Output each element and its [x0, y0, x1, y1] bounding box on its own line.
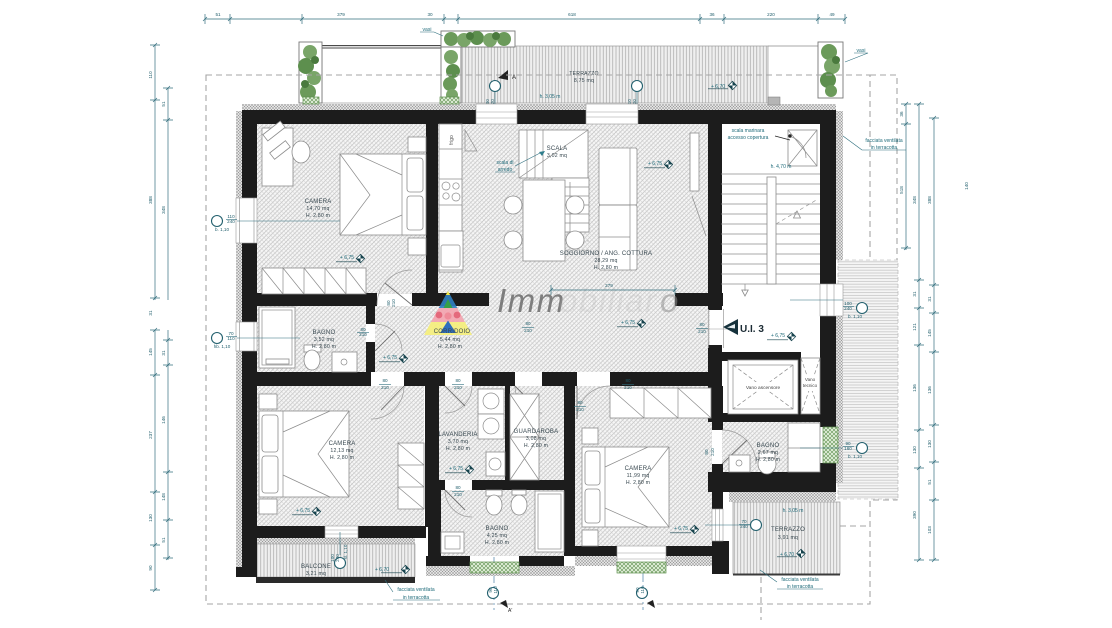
svg-text:210: 210: [710, 448, 715, 456]
svg-text:Imm: Imm: [497, 282, 566, 319]
svg-text:b. 1,10: b. 1,10: [215, 227, 229, 232]
svg-text:U.I. 3: U.I. 3: [740, 324, 764, 335]
svg-text:LAVANDERIA: LAVANDERIA: [438, 432, 477, 438]
svg-text:3,91 mq: 3,91 mq: [778, 535, 798, 541]
svg-text:BAGNO: BAGNO: [757, 443, 780, 449]
svg-text:+ 6,75: + 6,75: [674, 526, 688, 532]
svg-text:279: 279: [605, 283, 613, 288]
svg-text:sl. 1,10: sl. 1,10: [343, 544, 348, 559]
svg-text:hb. 1,10: hb. 1,10: [214, 344, 231, 349]
svg-text:accesso copertura: accesso copertura: [728, 135, 769, 141]
svg-text:140: 140: [964, 182, 969, 190]
svg-text:237: 237: [148, 431, 153, 439]
svg-text:80: 80: [577, 400, 583, 405]
svg-text:o: o: [660, 282, 680, 319]
svg-text:12,13 mq: 12,13 mq: [330, 448, 353, 454]
svg-text:51: 51: [161, 537, 166, 543]
svg-text:130: 130: [912, 446, 917, 454]
svg-text:facciata ventilata: facciata ventilata: [781, 577, 818, 583]
svg-text:h. 3,05 m: h. 3,05 m: [783, 508, 804, 514]
svg-text:facciata ventilata: facciata ventilata: [865, 138, 902, 144]
svg-text:scala di: scala di: [497, 160, 514, 166]
svg-text:130: 130: [148, 514, 153, 522]
svg-text:BAGNO: BAGNO: [313, 330, 336, 336]
svg-text:+ 6,75: + 6,75: [648, 161, 662, 167]
svg-text:80: 80: [455, 485, 461, 490]
svg-text:H. 2,80 m: H. 2,80 m: [756, 457, 780, 463]
svg-text:4,25 mq: 4,25 mq: [487, 533, 507, 539]
svg-text:379: 379: [337, 12, 345, 17]
svg-text:388: 388: [148, 196, 153, 204]
svg-text:518: 518: [899, 186, 904, 194]
svg-text:31: 31: [148, 310, 153, 316]
svg-text:SCALA: SCALA: [547, 146, 568, 152]
svg-text:103: 103: [927, 526, 932, 534]
svg-text:Vano: Vano: [805, 377, 816, 382]
svg-text:+ 6,75: + 6,75: [621, 320, 635, 326]
svg-text:210: 210: [624, 385, 632, 390]
svg-text:CAMERA: CAMERA: [329, 441, 356, 447]
svg-text:3,02 mq: 3,02 mq: [547, 153, 567, 159]
svg-text:14,70 mq: 14,70 mq: [306, 206, 329, 212]
svg-text:348: 348: [161, 206, 166, 214]
svg-text:+ 6,75: + 6,75: [296, 508, 310, 514]
svg-text:TERRAZZO: TERRAZZO: [771, 527, 805, 533]
svg-text:388: 388: [927, 196, 932, 204]
svg-text:148: 148: [161, 493, 166, 501]
svg-text:80: 80: [704, 449, 709, 455]
svg-text:H. 2,80 m: H. 2,80 m: [485, 540, 509, 546]
svg-text:BAGNO: BAGNO: [486, 526, 509, 532]
svg-text:51: 51: [215, 12, 221, 17]
svg-text:A: A: [512, 75, 516, 81]
svg-text:+ 6,75: + 6,75: [383, 355, 397, 361]
svg-text:H. 2,80 m: H. 2,80 m: [524, 443, 548, 449]
svg-text:136: 136: [927, 386, 932, 394]
svg-text:146: 146: [161, 416, 166, 424]
svg-text:tecnico: tecnico: [803, 383, 818, 388]
svg-text:90: 90: [148, 565, 153, 571]
svg-text:facciata ventilata: facciata ventilata: [397, 587, 434, 593]
svg-text:348: 348: [912, 196, 917, 204]
svg-text:frigo: frigo: [449, 135, 455, 145]
svg-text:31: 31: [161, 350, 166, 356]
svg-text:BALCONE: BALCONE: [301, 564, 331, 570]
svg-text:145: 145: [927, 329, 932, 337]
svg-text:H. 2,80 m: H. 2,80 m: [306, 213, 330, 219]
svg-text:H. 2,80 m: H. 2,80 m: [626, 480, 650, 486]
svg-text:scala marinara: scala marinara: [732, 128, 765, 134]
svg-text:51: 51: [161, 101, 166, 107]
svg-text:136: 136: [912, 384, 917, 392]
svg-text:CAMERA: CAMERA: [625, 466, 652, 472]
svg-text:30: 30: [427, 12, 433, 17]
svg-text:220: 220: [767, 12, 775, 17]
svg-text:TERRAZZO: TERRAZZO: [569, 71, 599, 77]
svg-text:3,52 mq: 3,52 mq: [314, 337, 334, 343]
svg-text:110: 110: [148, 71, 153, 79]
svg-text:80: 80: [525, 321, 531, 326]
svg-text:5,44 mq: 5,44 mq: [440, 337, 460, 343]
svg-text:+ 6,70: + 6,70: [375, 567, 389, 573]
svg-text:H. 2,80 m: H. 2,80 m: [594, 265, 618, 271]
svg-text:80: 80: [455, 378, 461, 383]
svg-text:28,29 mq: 28,29 mq: [594, 258, 617, 264]
svg-text:618: 618: [568, 12, 576, 17]
svg-text:3,08 mq: 3,08 mq: [526, 436, 546, 442]
svg-text:3,70 mq: 3,70 mq: [448, 439, 468, 445]
svg-text:H. 2,80 m: H. 2,80 m: [446, 446, 470, 452]
svg-text:210: 210: [698, 329, 706, 334]
svg-text:H. 2,80 m: H. 2,80 m: [438, 344, 462, 350]
svg-text:240: 240: [335, 554, 340, 562]
svg-text:h. 3,05 m: h. 3,05 m: [540, 94, 561, 100]
svg-text:210: 210: [576, 407, 584, 412]
svg-text:110: 110: [640, 586, 645, 594]
svg-text:110: 110: [493, 586, 498, 594]
svg-text:51: 51: [927, 479, 932, 485]
svg-text:h. 4,70 m: h. 4,70 m: [771, 164, 792, 170]
svg-text:CAMERA: CAMERA: [305, 199, 332, 205]
svg-text:H. 2,80 m: H. 2,80 m: [330, 455, 354, 461]
svg-text:+ 6,75: + 6,75: [449, 466, 463, 472]
svg-text:121: 121: [912, 323, 917, 331]
svg-text:H. 2,80 m: H. 2,80 m: [312, 344, 336, 350]
svg-text:31: 31: [927, 296, 932, 302]
svg-text:390: 390: [912, 511, 917, 519]
svg-text:3,21 mq: 3,21 mq: [306, 571, 326, 577]
svg-text:+ 6,75: + 6,75: [771, 333, 785, 339]
svg-text:210: 210: [391, 299, 396, 307]
svg-text:11,99 mq: 11,99 mq: [627, 473, 650, 479]
svg-text:80: 80: [699, 322, 705, 327]
svg-text:31: 31: [912, 291, 917, 297]
svg-text:210: 210: [454, 492, 462, 497]
svg-text:CORRIDOIO: CORRIDOIO: [434, 329, 471, 335]
svg-text:36: 36: [899, 111, 904, 117]
svg-text:36: 36: [709, 12, 715, 17]
svg-text:145: 145: [148, 348, 153, 356]
svg-text:Vano ascensore: Vano ascensore: [746, 385, 781, 391]
svg-text:2,67 mq: 2,67 mq: [758, 450, 778, 456]
svg-text:130: 130: [927, 440, 932, 448]
svg-text:+ 6,75: + 6,75: [340, 255, 354, 261]
svg-text:GUARDAROBA: GUARDAROBA: [514, 429, 559, 435]
svg-text:b. 1,10: b. 1,10: [848, 454, 862, 459]
svg-text:b. 1,10: b. 1,10: [848, 314, 862, 319]
svg-text:80: 80: [625, 378, 631, 383]
svg-text:8,75 mq: 8,75 mq: [574, 78, 594, 84]
svg-text:49: 49: [829, 12, 835, 17]
svg-text:210: 210: [381, 385, 389, 390]
svg-text:A': A': [508, 608, 512, 614]
svg-text:SOGGIORNO / ANG. COTTURA: SOGGIORNO / ANG. COTTURA: [560, 251, 652, 257]
svg-text:210: 210: [454, 385, 462, 390]
svg-text:210: 210: [524, 328, 532, 333]
svg-text:80: 80: [382, 378, 388, 383]
